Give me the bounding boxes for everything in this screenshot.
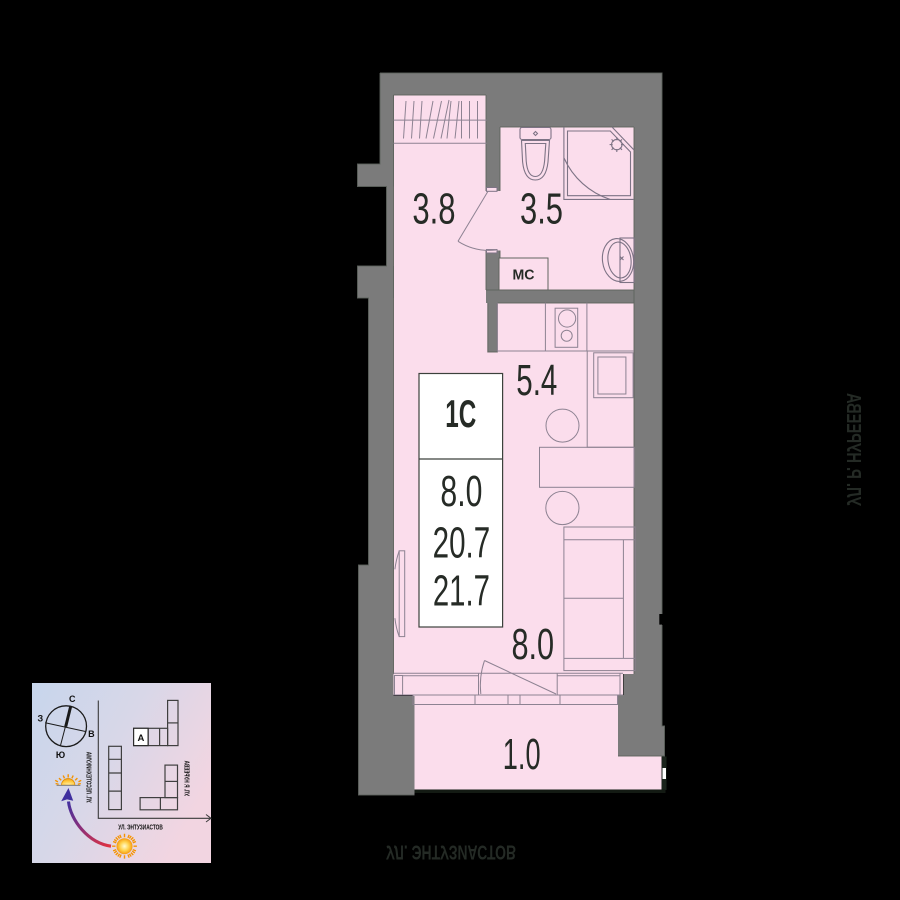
svg-text:3.8: 3.8 [412,185,455,234]
svg-text:УЛ. Р. НУРЕЕВА: УЛ. Р. НУРЕЕВА [842,393,864,506]
svg-text:С: С [69,694,76,704]
svg-text:А: А [137,733,144,744]
svg-text:1.0: 1.0 [503,730,541,779]
svg-text:УЛ. ЭНТУЗИАСТОВ: УЛ. ЭНТУЗИАСТОВ [118,822,163,831]
svg-text:8.0: 8.0 [511,620,554,669]
svg-text:УЛ. ЛЕСОТЕХНИКУМА: УЛ. ЛЕСОТЕХНИКУМА [85,752,92,803]
svg-text:5.4: 5.4 [516,356,557,405]
svg-text:1С: 1С [445,393,476,436]
svg-text:МС: МС [513,268,535,284]
svg-text:З: З [37,713,43,723]
svg-text:УЛ. Р. НУРЕЕВА: УЛ. Р. НУРЕЕВА [183,761,190,797]
svg-text:21.7: 21.7 [433,567,490,616]
svg-text:20.7: 20.7 [433,519,491,568]
svg-text:В: В [88,729,95,739]
svg-text:8.0: 8.0 [440,467,482,516]
svg-text:Ю: Ю [56,750,65,760]
svg-text:3.5: 3.5 [520,185,563,234]
svg-text:УЛ. ЭНТУЗИАСТОВ: УЛ. ЭНТУЗИАСТОВ [386,841,516,863]
